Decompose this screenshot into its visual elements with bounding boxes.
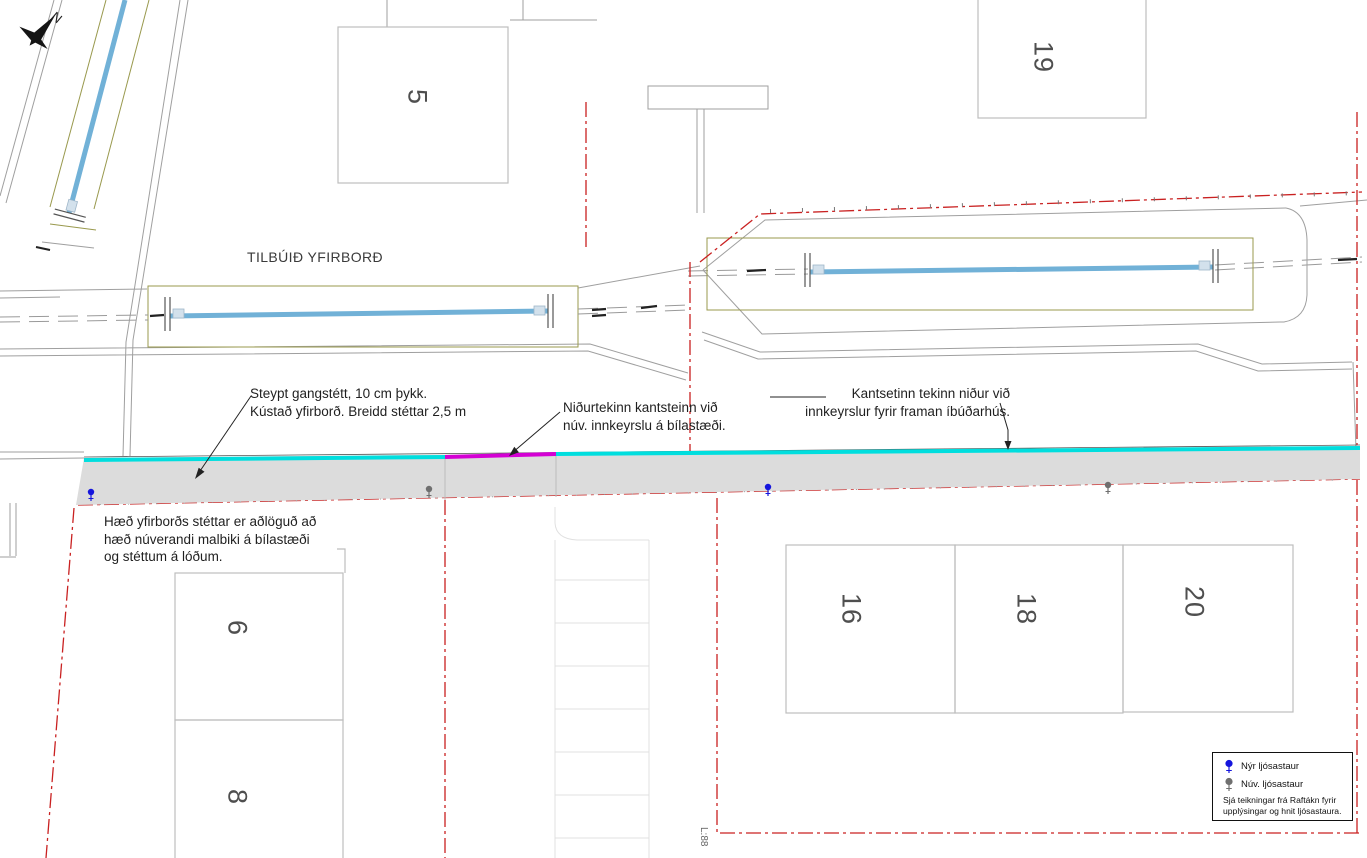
- pipe-end-marker: [165, 297, 184, 331]
- pipe-end-marker: [805, 253, 824, 287]
- house-number-20: 20: [1179, 586, 1210, 618]
- annotation-line: hæð núverandi malbiki á bílastæði: [104, 531, 316, 549]
- house-number-5: 5: [402, 89, 433, 105]
- left-district-heating-trench: [148, 286, 578, 347]
- building-20: [1123, 545, 1293, 712]
- pipe-end-marker: [534, 294, 553, 328]
- legend-note-line: upplýsingar og hnit ljósastaura.: [1223, 806, 1352, 817]
- annotation-surface-height: Hæð yfirborðs stéttar er aðlöguð að hæð …: [104, 513, 316, 566]
- building-8: [175, 720, 343, 858]
- legend-note-line: Sjá teikningar frá Raftákn fyrir: [1223, 795, 1352, 806]
- existing-lamp-icon: [1105, 482, 1111, 494]
- house-number-6: 6: [222, 620, 253, 636]
- parking-stalls: [555, 507, 649, 858]
- pipe-end-marker: [1199, 249, 1218, 283]
- building-16: [786, 545, 955, 713]
- annotation-line: Steypt gangstétt, 10 cm þykk.: [250, 385, 466, 403]
- site-plan-canvas: N TILBÚIÐ YFIRBORÐ Steypt gangstétt, 10 …: [0, 0, 1367, 858]
- annotation-line: og stéttum á lóðum.: [104, 548, 316, 566]
- building-6: [175, 573, 343, 720]
- pipe-end-marker: [54, 196, 90, 222]
- house-number-16: 16: [836, 593, 867, 625]
- existing-lamp-icon: [1223, 777, 1235, 792]
- buildings: [175, 0, 1293, 858]
- legend-note: Sjá teikningar frá Raftákn fyrir upplýsi…: [1223, 795, 1352, 816]
- annotation-sidewalk: Steypt gangstétt, 10 cm þykk. Kústað yfi…: [250, 385, 466, 420]
- building-18: [955, 545, 1123, 713]
- lamp-legend: Nýr ljósastaur Núv. ljósastaur Sjá teikn…: [1212, 752, 1353, 821]
- building-19: [978, 0, 1146, 118]
- house-number-8: 8: [222, 789, 253, 805]
- annotation-line: Kústað yfirborð. Breidd stéttar 2,5 m: [250, 403, 466, 421]
- upper-left-heating-pipe: [54, 0, 125, 222]
- legend-label: Nýr ljósastaur: [1241, 761, 1299, 772]
- annotation-line: núv. innkeyrslu á bílastæði.: [563, 417, 726, 435]
- sidewalk-band: [76, 445, 1360, 505]
- house-number-19: 19: [1028, 41, 1059, 73]
- annotation-line: Hæð yfirborðs stéttar er aðlöguð að: [104, 513, 316, 531]
- legend-row-new-lamp: Nýr ljósastaur: [1223, 757, 1352, 775]
- annotation-line: Kantsetinn tekinn niður við: [768, 385, 1010, 403]
- annotation-curb-houses: Kantsetinn tekinn niður við innkeyrslur …: [768, 385, 1010, 420]
- right-road-outline: [387, 0, 1367, 450]
- legend-label: Núv. ljósastaur: [1241, 779, 1303, 790]
- finished-surface-label: TILBÚIÐ YFIRBORÐ: [247, 249, 383, 265]
- house-number-18: 18: [1011, 593, 1042, 625]
- upper-left-road: [0, 0, 188, 456]
- annotation-line: innkeyrslur fyrir framan íbúðarhús.: [768, 403, 1010, 421]
- legend-row-existing-lamp: Núv. ljósastaur: [1223, 775, 1352, 793]
- new-lamp-icon: [1223, 759, 1235, 774]
- annotation-curb-driveway: Niðurtekinn kantsteinn við núv. innkeyrs…: [563, 399, 726, 434]
- annotation-line: Niðurtekinn kantsteinn við: [563, 399, 726, 417]
- station-label: L:88: [698, 827, 709, 846]
